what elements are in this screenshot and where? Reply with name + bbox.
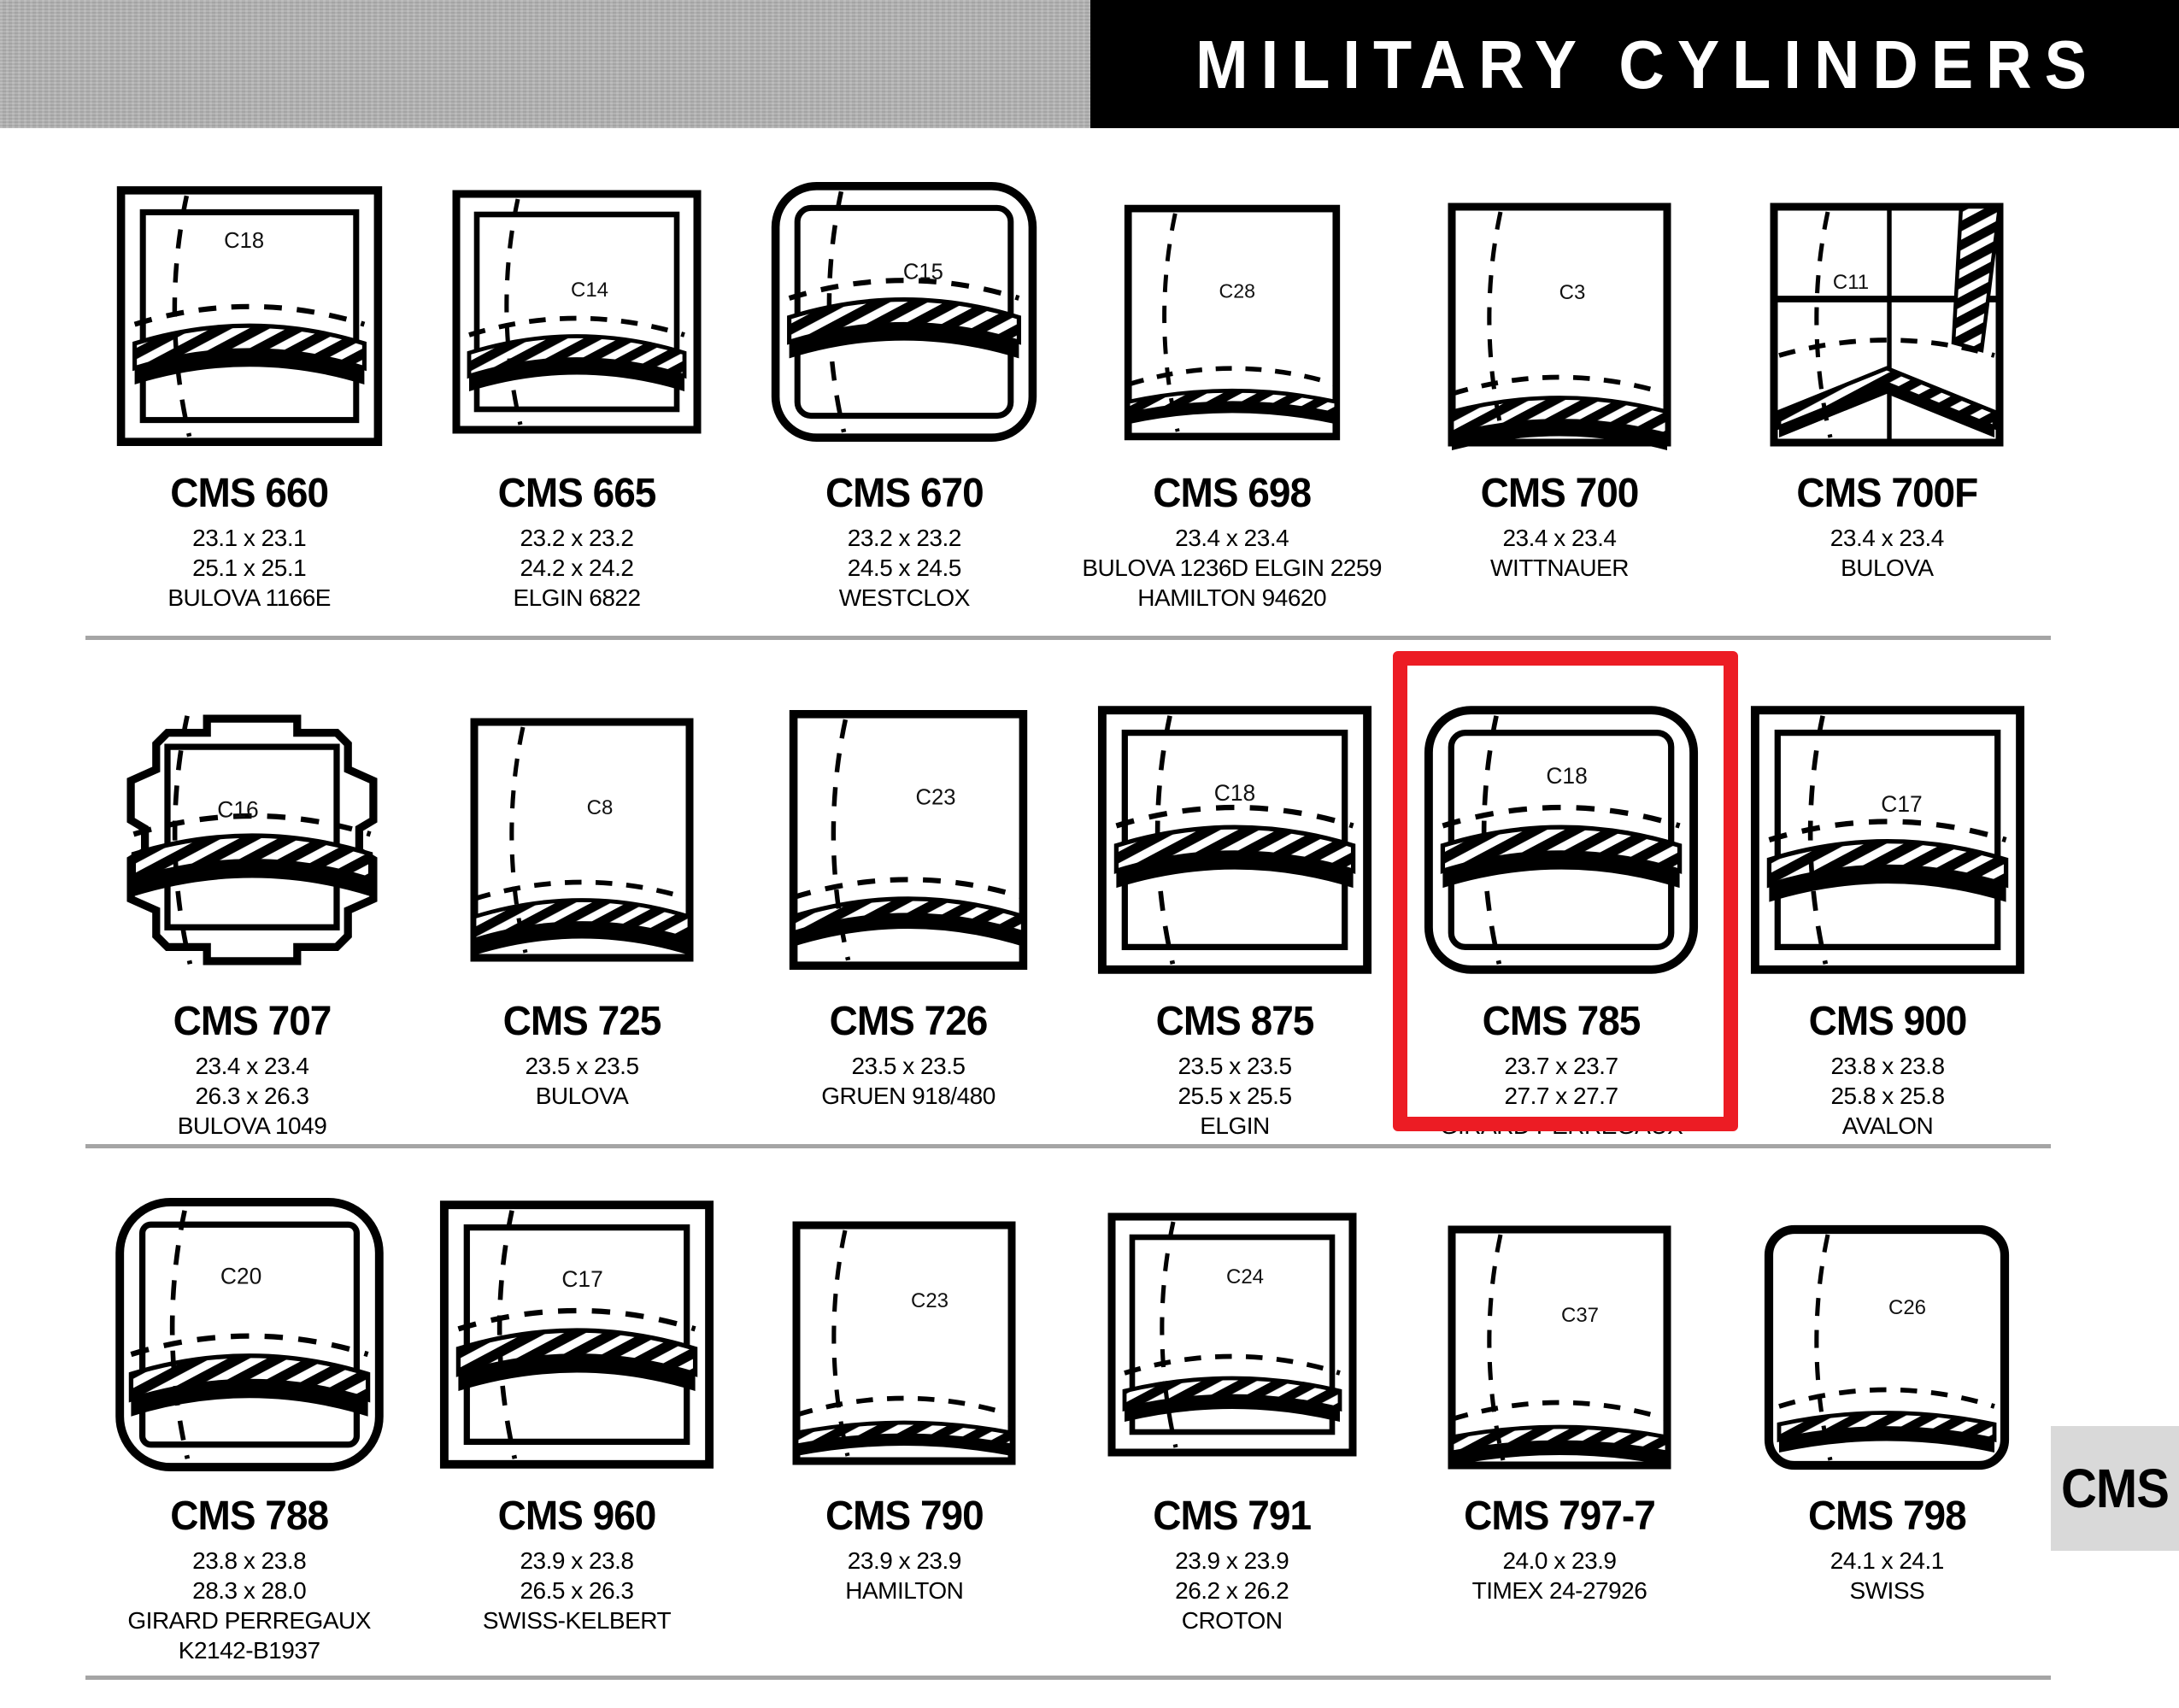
spec-line: 23.9 x 23.9 [1175, 1546, 1289, 1576]
spec-line: 23.7 x 23.7 [1440, 1051, 1683, 1081]
spec-line: BULOVA [1830, 553, 1944, 583]
spec-line: 23.2 x 23.2 [513, 523, 640, 553]
spec-line: ELGIN 6822 [513, 583, 640, 613]
page-header: MILITARY CYLINDERS [0, 0, 2179, 128]
spec-line: 24.0 x 23.9 [1472, 1546, 1647, 1576]
crystal-illustration: C18 [109, 128, 391, 461]
spec-lines: 23.9 x 23.9HAMILTON [845, 1546, 963, 1605]
spec-line: GIRARD PERREGAUX [1440, 1111, 1683, 1141]
spec-lines: 23.9 x 23.826.5 x 26.3SWISS-KELBERT [483, 1546, 671, 1635]
model-number: CMS 791 [1153, 1492, 1311, 1539]
model-number: CMS 700F [1796, 469, 1977, 516]
spec-line: BULOVA 1166E [167, 583, 331, 613]
header-texture-strip [0, 0, 1090, 128]
product-cell-cms-698[interactable]: C28 CMS 698 23.4 x 23.4BULOVA 1236D ELGI… [1068, 128, 1395, 637]
spec-line: SWISS-KELBERT [483, 1605, 671, 1635]
crystal-illustration: C26 [1754, 1149, 2019, 1484]
spec-lines: 23.4 x 23.426.3 x 26.3BULOVA 1049 [178, 1051, 327, 1141]
row-divider [85, 1144, 2051, 1148]
spec-line: WITTNAUER [1490, 553, 1629, 583]
crystal-illustration: C3 [1423, 128, 1696, 461]
svg-text:C18: C18 [1214, 780, 1255, 806]
crystal-illustration: C17 [436, 1149, 718, 1484]
model-number: CMS 785 [1483, 997, 1641, 1044]
crystal-illustration: C23 [772, 641, 1045, 989]
crystal-illustration: C20 [104, 1149, 395, 1484]
crystal-illustration: C15 [767, 128, 1041, 461]
spec-line: 23.4 x 23.4 [1490, 523, 1629, 553]
spec-line: 24.2 x 24.2 [513, 553, 640, 583]
spec-line: CROTON [1175, 1605, 1289, 1635]
model-number: CMS 790 [825, 1492, 984, 1539]
spec-lines: 23.4 x 23.4BULOVA [1830, 523, 1944, 583]
spec-line: GIRARD PERREGAUX [127, 1605, 371, 1635]
bottom-divider [85, 1676, 2051, 1680]
product-cell-cms-726[interactable]: C23 CMS 726 23.5 x 23.5GRUEN 918/480 [745, 641, 1072, 1145]
product-cell-cms-707[interactable]: C16 CMS 707 23.4 x 23.426.3 x 26.3BULOVA… [85, 641, 419, 1145]
svg-text:C15: C15 [903, 261, 943, 285]
product-cell-cms-960[interactable]: C17 CMS 960 23.9 x 23.826.5 x 26.3SWISS-… [413, 1149, 740, 1676]
model-number: CMS 707 [173, 997, 332, 1044]
crystal-illustration: C18 [1094, 641, 1376, 989]
svg-text:C18: C18 [224, 229, 264, 253]
model-number: CMS 660 [170, 469, 328, 516]
spec-line: BULOVA 1049 [178, 1111, 327, 1141]
svg-text:C23: C23 [911, 1289, 949, 1312]
product-cell-cms-785[interactable]: C18 CMS 785 23.7 x 23.727.7 x 27.7GIRARD… [1398, 641, 1724, 1145]
svg-text:C17: C17 [561, 1266, 602, 1292]
spec-lines: 24.0 x 23.9TIMEX 24-27926 [1472, 1546, 1647, 1605]
spec-line: TIMEX 24-27926 [1472, 1576, 1647, 1605]
spec-line: 26.3 x 26.3 [178, 1081, 327, 1111]
product-cell-cms-797-7[interactable]: C37 CMS 797-7 24.0 x 23.9TIMEX 24-27926 [1395, 1149, 1723, 1676]
spec-line: 26.5 x 26.3 [483, 1576, 671, 1605]
spec-line: 23.2 x 23.2 [839, 523, 970, 553]
spec-line: AVALON [1830, 1111, 1944, 1141]
product-row-3: C20 CMS 788 23.8 x 23.828.3 x 28.0GIRARD… [85, 1149, 2051, 1676]
svg-text:C24: C24 [1226, 1265, 1264, 1288]
svg-text:C18: C18 [1546, 763, 1587, 789]
model-number: CMS 798 [1808, 1492, 1966, 1539]
spec-line: GRUEN 918/480 [821, 1081, 996, 1111]
cms-tab-label: CMS [2061, 1457, 2169, 1520]
spec-line: 23.8 x 23.8 [127, 1546, 371, 1576]
product-cell-cms-700f[interactable]: C11 CMS 700F 23.4 x 23.4BULOVA [1724, 128, 2051, 637]
spec-lines: 23.1 x 23.125.1 x 25.1BULOVA 1166E [167, 523, 331, 613]
spec-line: 25.8 x 25.8 [1830, 1081, 1944, 1111]
spec-line: BULOVA 1236D ELGIN 2259 [1082, 553, 1382, 583]
spec-line: 23.9 x 23.8 [483, 1546, 671, 1576]
spec-line: 26.2 x 26.2 [1175, 1576, 1289, 1605]
spec-line: 23.1 x 23.1 [167, 523, 331, 553]
svg-text:C26: C26 [1888, 1296, 1926, 1319]
crystal-illustration: C17 [1747, 641, 2029, 989]
spec-line: 23.5 x 23.5 [525, 1051, 638, 1081]
spec-lines: 23.5 x 23.5BULOVA [525, 1051, 638, 1111]
crystal-illustration: C14 [449, 128, 705, 461]
model-number: CMS 725 [503, 997, 661, 1044]
spec-line: 23.9 x 23.9 [845, 1546, 963, 1576]
product-cell-cms-670[interactable]: C15 CMS 670 23.2 x 23.224.5 x 24.5WESTCL… [741, 128, 1068, 637]
model-number: CMS 875 [1156, 997, 1314, 1044]
spec-line: WESTCLOX [839, 583, 970, 613]
svg-text:C14: C14 [571, 279, 608, 302]
spec-line: 25.1 x 25.1 [167, 553, 331, 583]
product-cell-cms-790[interactable]: C23 CMS 790 23.9 x 23.9HAMILTON [741, 1149, 1068, 1676]
spec-line: 24.5 x 24.5 [839, 553, 970, 583]
spec-lines: 23.8 x 23.825.8 x 25.8AVALON [1830, 1051, 1944, 1141]
model-number: CMS 670 [825, 469, 984, 516]
spec-lines: 23.2 x 23.224.5 x 24.5WESTCLOX [839, 523, 970, 613]
spec-line: K2142-B1937 [127, 1635, 371, 1665]
product-cell-cms-791[interactable]: C24 CMS 791 23.9 x 23.926.2 x 26.2CROTON [1068, 1149, 1395, 1676]
product-cell-cms-875[interactable]: C18 CMS 875 23.5 x 23.525.5 x 25.5ELGIN [1072, 641, 1398, 1145]
spec-lines: 23.4 x 23.4BULOVA 1236D ELGIN 2259HAMILT… [1082, 523, 1382, 613]
spec-line: BULOVA [525, 1081, 638, 1111]
model-number: CMS 700 [1481, 469, 1639, 516]
spec-line: 28.3 x 28.0 [127, 1576, 371, 1605]
crystal-illustration: C28 [1108, 128, 1356, 461]
spec-line: 23.4 x 23.4 [1830, 523, 1944, 553]
spec-line: 23.5 x 23.5 [1178, 1051, 1291, 1081]
spec-line: 25.5 x 25.5 [1178, 1081, 1291, 1111]
spec-lines: 23.7 x 23.727.7 x 27.7GIRARD PERREGAUX [1440, 1051, 1683, 1141]
svg-text:C37: C37 [1561, 1304, 1599, 1327]
model-number: CMS 665 [498, 469, 656, 516]
product-cell-cms-900[interactable]: C17 CMS 900 23.8 x 23.825.8 x 25.8AVALON [1724, 641, 2051, 1145]
product-cell-cms-725[interactable]: C8 CMS 725 23.5 x 23.5BULOVA [419, 641, 745, 1145]
cms-section-tab[interactable]: CMS [2051, 1426, 2179, 1551]
spec-line: 23.8 x 23.8 [1830, 1051, 1944, 1081]
svg-text:C23: C23 [916, 785, 956, 809]
crystal-illustration: C11 [1754, 128, 2019, 461]
spec-lines: 23.8 x 23.828.3 x 28.0GIRARD PERREGAUXK2… [127, 1546, 371, 1665]
spec-line: SWISS [1830, 1576, 1944, 1605]
crystal-illustration: C37 [1431, 1149, 1688, 1484]
spec-line: HAMILTON 94620 [1082, 583, 1382, 613]
svg-text:C3: C3 [1559, 281, 1586, 304]
spec-line: ELGIN [1178, 1111, 1291, 1141]
row-divider [85, 636, 2051, 640]
svg-text:C11: C11 [1833, 271, 1869, 294]
svg-text:C8: C8 [587, 796, 614, 819]
spec-line: 23.5 x 23.5 [821, 1051, 996, 1081]
header-title-bar: MILITARY CYLINDERS [1090, 0, 2179, 128]
crystal-illustration: C16 [85, 641, 419, 989]
spec-lines: 23.4 x 23.4WITTNAUER [1490, 523, 1629, 583]
spec-lines: 23.9 x 23.926.2 x 26.2CROTON [1175, 1546, 1289, 1635]
product-cell-cms-660[interactable]: C18 CMS 660 23.1 x 23.125.1 x 25.1BULOVA… [85, 128, 413, 637]
spec-lines: 23.5 x 23.5GRUEN 918/480 [821, 1051, 996, 1111]
spec-line: 27.7 x 27.7 [1440, 1081, 1683, 1111]
spec-lines: 23.2 x 23.224.2 x 24.2ELGIN 6822 [513, 523, 640, 613]
product-row-1: C18 CMS 660 23.1 x 23.125.1 x 25.1BULOVA… [85, 128, 2051, 637]
model-number: CMS 788 [170, 1492, 328, 1539]
svg-text:C28: C28 [1219, 280, 1255, 302]
spec-line: 23.4 x 23.4 [1082, 523, 1382, 553]
model-number: CMS 797-7 [1464, 1492, 1655, 1539]
crystal-illustration: C18 [1407, 641, 1715, 989]
product-cell-cms-665[interactable]: C14 CMS 665 23.2 x 23.224.2 x 24.2ELGIN … [413, 128, 740, 637]
svg-text:C17: C17 [1881, 791, 1922, 817]
crystal-illustration: C24 [1104, 1149, 1360, 1484]
model-number: CMS 698 [1153, 469, 1311, 516]
spec-line: 24.1 x 24.1 [1830, 1546, 1944, 1576]
product-cell-cms-798[interactable]: C26 CMS 798 24.1 x 24.1SWISS [1724, 1149, 2051, 1676]
product-cell-cms-700[interactable]: C3 CMS 700 23.4 x 23.4WITTNAUER [1395, 128, 1723, 637]
spec-line: 23.4 x 23.4 [178, 1051, 327, 1081]
product-cell-cms-788[interactable]: C20 CMS 788 23.8 x 23.828.3 x 28.0GIRARD… [85, 1149, 413, 1676]
spec-line: HAMILTON [845, 1576, 963, 1605]
svg-text:C16: C16 [217, 797, 258, 823]
model-number: CMS 900 [1809, 997, 1967, 1044]
spec-lines: 24.1 x 24.1SWISS [1830, 1546, 1944, 1605]
spec-lines: 23.5 x 23.525.5 x 25.5ELGIN [1178, 1051, 1291, 1141]
crystal-illustration: C23 [776, 1149, 1032, 1484]
page-title: MILITARY CYLINDERS [1170, 25, 2100, 103]
model-number: CMS 726 [830, 997, 988, 1044]
product-row-2: C16 CMS 707 23.4 x 23.426.3 x 26.3BULOVA… [85, 641, 2051, 1145]
crystal-illustration: C8 [454, 641, 710, 989]
svg-text:C20: C20 [220, 1264, 261, 1289]
model-number: CMS 960 [498, 1492, 656, 1539]
